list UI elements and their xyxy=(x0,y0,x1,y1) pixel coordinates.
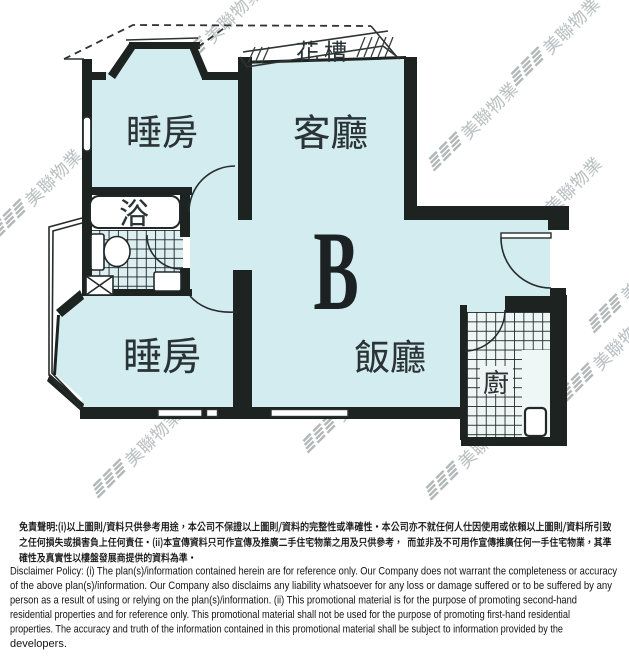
svg-text:Disclaimer Policy: (i) The pla: Disclaimer Policy: (i) The plan(s)/infor… xyxy=(10,566,617,578)
svg-text:residential properties and for: residential properties and for reference… xyxy=(10,609,570,621)
svg-text:developers.: developers. xyxy=(10,638,67,650)
svg-text:properties. The accuracy and t: properties. The accuracy and truth of th… xyxy=(10,624,563,636)
svg-text:person as a result of using or: person as a result of using or relying o… xyxy=(10,595,577,607)
svg-text:B: B xyxy=(313,210,358,335)
svg-text:of the above plan(s)/informati: of the above plan(s)/information. Our Co… xyxy=(10,580,612,592)
